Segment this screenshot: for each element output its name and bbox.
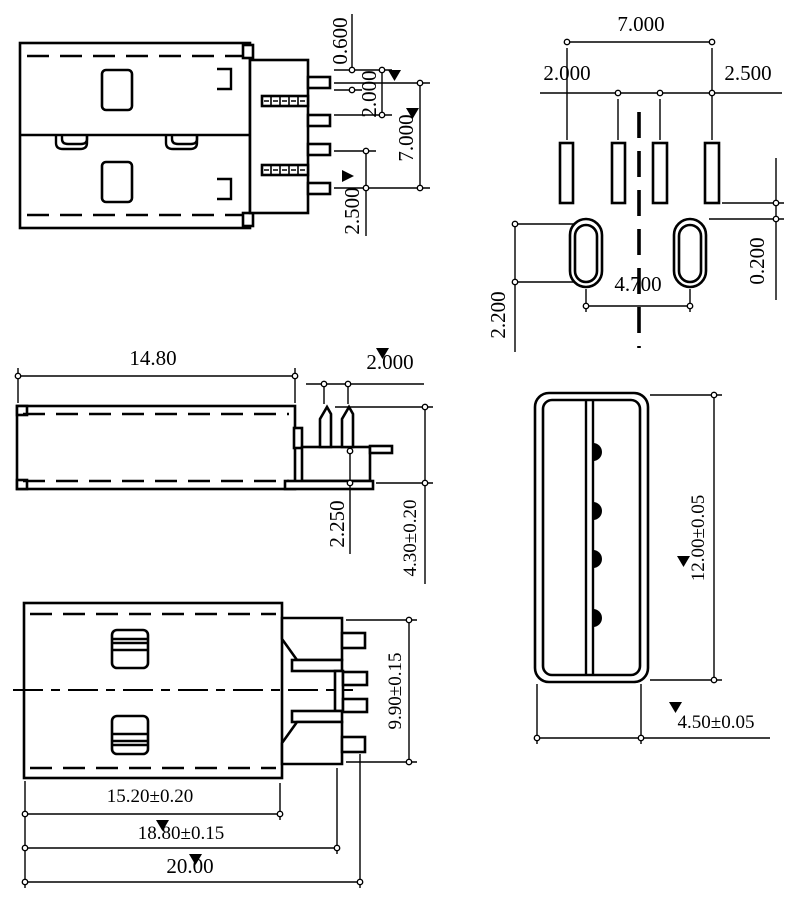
dim-tick bbox=[657, 90, 662, 95]
crimp-tab-top bbox=[262, 96, 308, 106]
dim-label-width: 12.00±0.05 bbox=[688, 495, 709, 581]
footprint-dimensions: 7.000 2.000 2.500 0.200 4.700 bbox=[486, 12, 784, 352]
dim-label-pitch-outer: 2.500 bbox=[724, 61, 771, 85]
solder-pin-2 bbox=[308, 115, 330, 126]
dim-label-length: 14.80 bbox=[129, 346, 176, 370]
dim-tick bbox=[22, 845, 27, 850]
body-block-top bbox=[282, 618, 342, 660]
body-step-bottom bbox=[292, 711, 342, 722]
latch-detail-bottom bbox=[112, 716, 148, 754]
dim-tick bbox=[687, 303, 692, 308]
shell-crimp-top bbox=[243, 45, 253, 58]
dim-tick bbox=[512, 279, 517, 284]
shell-rear-tab bbox=[294, 428, 302, 448]
dim-tick bbox=[292, 373, 297, 378]
body-block-bottom bbox=[282, 722, 342, 764]
pin-2 bbox=[343, 672, 367, 685]
dim-label-hook-pitch: 2.000 bbox=[366, 350, 413, 374]
dim-label-total-len: 20.00 bbox=[166, 854, 213, 878]
solder-pin-3 bbox=[308, 144, 330, 155]
dim-label-pitch-a: 2.000 bbox=[357, 70, 381, 117]
pin-3 bbox=[343, 699, 367, 712]
front-view: 12.00±0.05 4.50±0.05 bbox=[534, 392, 770, 744]
solder-pin-1 bbox=[308, 77, 330, 88]
shell-crimp-bottom bbox=[243, 213, 253, 226]
drawing-canvas: 0.600 2.000 7.000 2.500 bbox=[0, 0, 790, 906]
dim-label-height: 4.50±0.05 bbox=[678, 712, 755, 733]
dim-tick bbox=[22, 811, 27, 816]
dim-label-hole-pitch: 4.700 bbox=[614, 272, 661, 296]
dim-tick bbox=[345, 381, 350, 386]
latch-detail-top bbox=[112, 630, 148, 668]
dim-tick bbox=[363, 148, 368, 153]
dim-label-pad-span: 7.000 bbox=[617, 12, 664, 36]
dim-tick bbox=[709, 90, 714, 95]
dim-tick bbox=[347, 448, 352, 453]
datum-triangle-icon bbox=[342, 170, 354, 182]
dim-label-shell-len: 15.20±0.20 bbox=[107, 786, 193, 807]
dim-tick bbox=[773, 216, 778, 221]
body-base bbox=[285, 481, 373, 489]
hook-pin-1 bbox=[320, 407, 331, 447]
dim-tick bbox=[417, 185, 422, 190]
dim-label-pitch-inner: 2.000 bbox=[543, 61, 590, 85]
pin-4 bbox=[342, 737, 365, 752]
dim-label-pin-thickness: 0.600 bbox=[328, 17, 352, 64]
dim-tick bbox=[615, 90, 620, 95]
footprint-view: 7.000 2.000 2.500 0.200 4.700 bbox=[486, 12, 784, 352]
dim-tick bbox=[406, 617, 411, 622]
dim-tick bbox=[22, 879, 27, 884]
crimp-tab-bottom bbox=[262, 165, 308, 175]
side-view-dimensions: 0.600 2.000 7.000 2.500 bbox=[328, 14, 430, 236]
dim-tick bbox=[277, 811, 282, 816]
dim-label-pin-span: 9.90±0.15 bbox=[385, 653, 406, 730]
dim-label-height: 4.30±0.20 bbox=[400, 500, 421, 577]
dim-tick bbox=[417, 80, 422, 85]
dim-tick bbox=[512, 221, 517, 226]
side-view: 0.600 2.000 7.000 2.500 bbox=[20, 14, 430, 236]
dim-tick bbox=[534, 735, 539, 740]
dim-tick bbox=[422, 404, 427, 409]
board-lock-tab bbox=[370, 446, 392, 453]
pad-4 bbox=[705, 143, 719, 203]
dim-tick bbox=[773, 200, 778, 205]
dim-tick bbox=[347, 480, 352, 485]
dim-tick bbox=[406, 759, 411, 764]
dim-tick bbox=[349, 67, 354, 72]
solder-pin-4 bbox=[308, 183, 330, 194]
mount-hole-right-inner bbox=[679, 225, 701, 282]
datum-triangle-icon bbox=[388, 70, 401, 81]
dim-tick bbox=[711, 392, 716, 397]
dim-tick bbox=[564, 39, 569, 44]
shell-window-bottom bbox=[102, 162, 132, 202]
profile-view: 14.80 2.000 2.250 4.30±0.20 bbox=[15, 346, 433, 584]
dim-tick bbox=[15, 373, 20, 378]
pad-1 bbox=[560, 143, 573, 203]
dim-label-pitch-b: 2.500 bbox=[340, 187, 364, 234]
top-view: 9.90±0.15 15.20±0.20 18.80±0.15 20.00 bbox=[13, 603, 417, 888]
pad-3 bbox=[653, 143, 667, 203]
dim-label-clearance: 0.200 bbox=[745, 237, 769, 284]
dim-tick bbox=[334, 845, 339, 850]
mount-hole-left-inner bbox=[575, 225, 597, 282]
dim-tick bbox=[357, 879, 362, 884]
pin-1 bbox=[342, 633, 365, 648]
shell-window-top bbox=[102, 70, 132, 110]
dim-tick bbox=[422, 480, 427, 485]
dim-label-pin-drop: 2.250 bbox=[325, 500, 349, 547]
dim-label-hole-len: 2.200 bbox=[486, 291, 510, 338]
usb-plug-technical-drawing: 0.600 2.000 7.000 2.500 bbox=[0, 0, 790, 906]
dim-tick bbox=[349, 87, 354, 92]
body-step-top bbox=[292, 660, 342, 671]
body-block bbox=[302, 447, 370, 481]
dim-tick bbox=[711, 677, 716, 682]
dim-tick bbox=[363, 185, 368, 190]
shell-front-inner bbox=[543, 400, 640, 675]
dim-label-span: 7.000 bbox=[394, 114, 418, 161]
dim-tick bbox=[638, 735, 643, 740]
dim-tick bbox=[321, 381, 326, 386]
plastic-body bbox=[250, 60, 308, 213]
dim-tick bbox=[583, 303, 588, 308]
hook-pin-2 bbox=[342, 407, 353, 447]
shell-profile-outline bbox=[17, 406, 295, 489]
pad-2 bbox=[612, 143, 625, 203]
dim-tick bbox=[709, 39, 714, 44]
dim-label-body-len: 18.80±0.15 bbox=[138, 823, 224, 844]
